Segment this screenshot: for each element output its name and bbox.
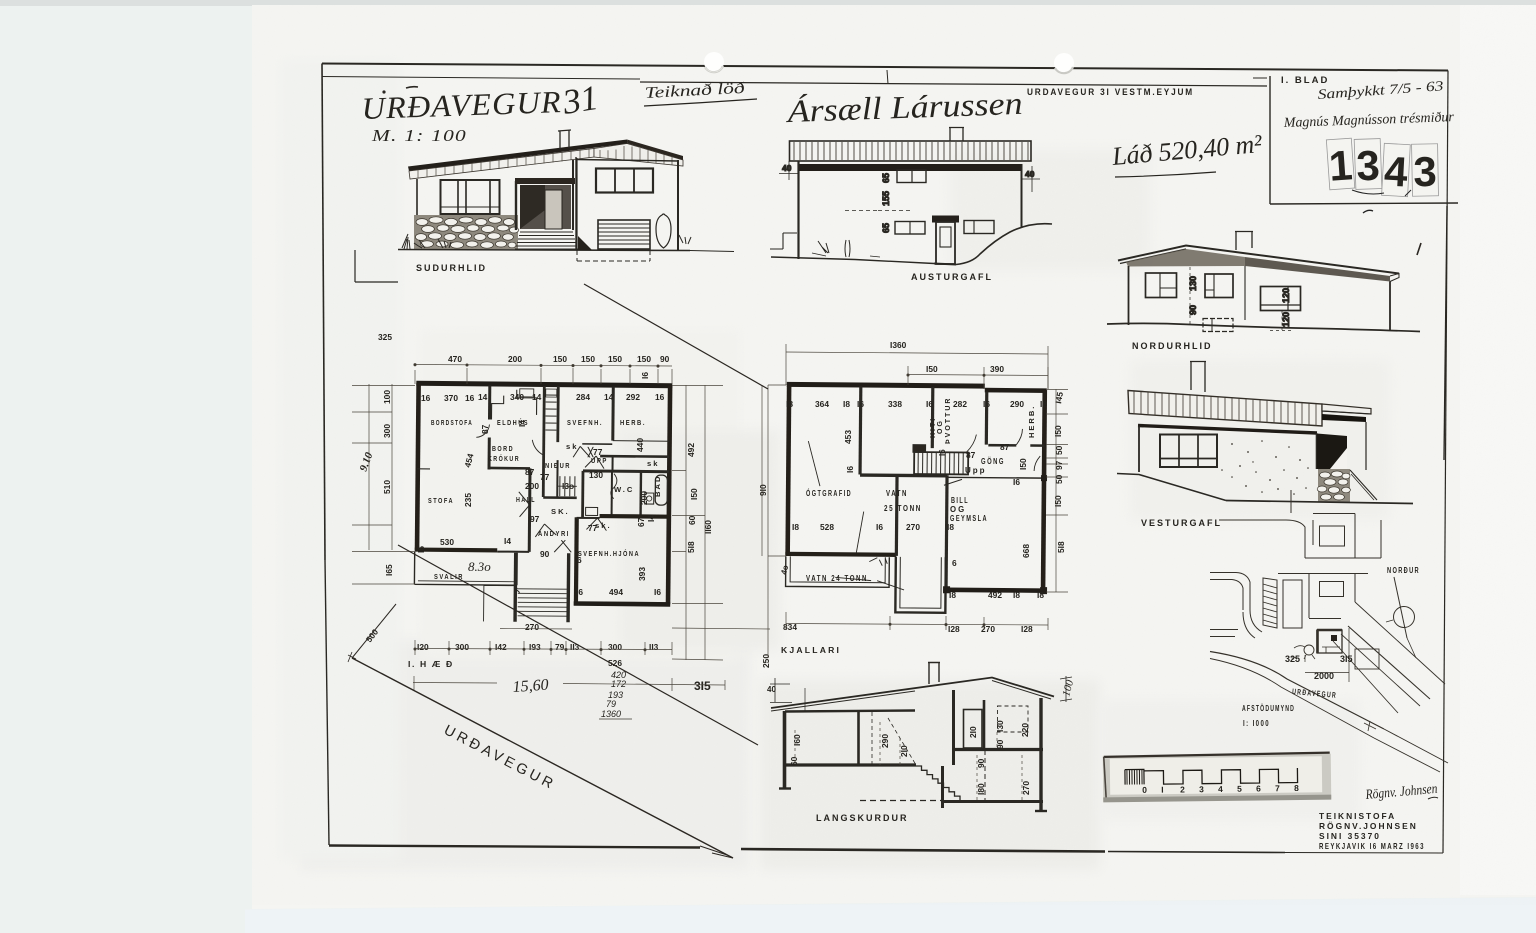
svg-text:I3o: I3o [562,481,574,491]
svg-text:60: 60 [687,515,697,525]
svg-text:AFSTÖDUMYND: AFSTÖDUMYND [1242,703,1295,713]
svg-text:M. 1: 100: M. 1: 100 [371,126,467,145]
svg-text:URÐAVEGUR: URÐAVEGUR [361,84,562,126]
svg-text:6: 6 [952,558,957,568]
svg-text:120: 120 [1281,288,1291,303]
svg-text:I50: I50 [689,488,699,500]
svg-text:I60: I60 [792,734,802,746]
svg-text:3I5: 3I5 [1340,654,1353,664]
svg-text:470: 470 [448,354,462,364]
svg-text:I6: I6 [938,449,947,456]
svg-text:1: 1 [1327,141,1354,190]
svg-text:2: 2 [1180,784,1185,794]
svg-text:I42: I42 [495,642,507,652]
svg-text:290: 290 [1010,399,1024,409]
svg-text:65: 65 [881,173,891,183]
svg-text:URDAVEGUR 3I VESTM.EYJUM: URDAVEGUR 3I VESTM.EYJUM [1027,87,1194,97]
svg-text:I6: I6 [926,399,933,409]
svg-text:3: 3 [1356,142,1381,190]
svg-text:I6: I6 [640,372,650,379]
svg-text:8.3o: 8.3o [468,559,491,574]
svg-text:60: 60 [789,756,799,766]
svg-text:I6: I6 [654,587,661,597]
svg-text:300: 300 [455,642,469,652]
svg-text:77: 77 [588,523,598,533]
svg-text:150: 150 [553,354,567,364]
svg-text:40: 40 [1025,169,1035,179]
svg-text:I8: I8 [792,522,799,532]
svg-text:I28: I28 [948,624,960,634]
svg-text:14: 14 [604,392,614,402]
svg-text:SVEFNH.: SVEFNH. [567,418,603,427]
svg-text:97: 97 [530,514,540,524]
svg-text:LANGSKURDUR: LANGSKURDUR [816,813,909,823]
svg-text:I. H Æ Ð: I. H Æ Ð [408,659,454,669]
svg-text:3: 3 [1413,148,1437,195]
svg-text:87: 87 [525,467,535,477]
svg-text:ANDYRI: ANDYRI [538,529,570,538]
svg-text:I6: I6 [1013,477,1020,487]
svg-text:I80: I80 [976,783,986,795]
svg-text:5I8: 5I8 [1056,541,1066,553]
svg-text:364: 364 [815,399,829,409]
svg-text:2I0: 2I0 [968,726,978,738]
svg-text:338: 338 [888,399,902,409]
svg-text:494: 494 [609,587,623,597]
svg-text:5: 5 [1237,784,1242,794]
svg-text:340: 340 [510,392,524,402]
svg-text:AUSTURGAFL: AUSTURGAFL [911,272,993,282]
svg-text:9I0: 9I0 [758,484,768,496]
svg-text:155: 155 [881,191,891,206]
svg-text:I93: I93 [529,642,541,652]
svg-text:77: 77 [540,472,550,482]
svg-text:I50: I50 [1018,458,1028,470]
svg-text:7: 7 [1275,783,1280,793]
svg-text:100: 100 [382,390,392,404]
svg-text:UPP: UPP [591,456,608,465]
svg-text:3: 3 [1199,784,1204,794]
svg-text:6: 6 [1256,783,1261,793]
svg-text:ÓGTGRAFID: ÓGTGRAFID [806,489,852,498]
svg-text:HITI: HITI [930,417,937,438]
svg-text:50: 50 [1054,445,1064,455]
svg-text:150: 150 [581,354,595,364]
svg-text:2000: 2000 [1314,671,1334,681]
svg-text:528: 528 [820,522,834,532]
svg-text:120: 120 [1281,312,1291,327]
svg-text:79: 79 [555,642,565,652]
svg-text:II3: II3 [649,642,659,652]
svg-text:sk: sk [566,442,578,451]
svg-text:200: 200 [508,354,522,364]
svg-text:2I0: 2I0 [899,745,909,757]
svg-text:65: 65 [881,223,891,233]
svg-text:130: 130 [1188,276,1198,291]
svg-text:3I5: 3I5 [694,679,711,693]
svg-text:90: 90 [540,549,550,559]
svg-text:390: 390 [990,364,1004,374]
svg-text:370: 370 [444,393,458,403]
svg-text:NORÐUR: NORÐUR [1387,565,1420,575]
svg-text:4: 4 [1383,147,1409,195]
svg-text:250: 250 [761,654,771,668]
svg-text:SVEFNH.HJÓNA: SVEFNH.HJÓNA [578,549,640,558]
svg-text:I6: I6 [845,466,855,473]
svg-text:sk: sk [647,459,659,468]
svg-text:97: 97 [1054,460,1064,470]
svg-text:I8: I8 [843,399,850,409]
svg-text:OG: OG [937,419,944,434]
svg-text:79: 79 [606,699,616,709]
svg-text:50: 50 [1054,474,1064,484]
svg-text:I45: I45 [1053,391,1065,405]
svg-text:220: 220 [1020,723,1030,737]
svg-text:270: 270 [525,622,539,632]
svg-text:6: 6 [577,555,582,565]
svg-text:I6: I6 [857,399,864,409]
svg-text:87: 87 [480,424,490,434]
svg-text:I: I [1161,785,1163,795]
svg-text:I8: I8 [949,590,956,600]
svg-text:sk.: sk. [595,521,612,530]
svg-text:40: 40 [767,685,776,694]
svg-text:Upp: Upp [965,466,987,475]
svg-text:90: 90 [660,354,670,364]
svg-text:4: 4 [1218,784,1223,794]
svg-text:I8: I8 [1037,590,1044,600]
svg-text:I50: I50 [1053,495,1063,507]
svg-text:14: 14 [532,392,542,402]
svg-text:282: 282 [953,399,967,409]
svg-text:╳77: ╳77 [587,447,603,458]
svg-text:0: 0 [1142,785,1147,795]
svg-text:8: 8 [1294,783,1299,793]
svg-text:40: 40 [782,163,792,173]
svg-text:I8: I8 [786,399,793,409]
svg-text:I6: I6 [576,587,583,597]
svg-text:492: 492 [988,590,1002,600]
svg-text:BAD: BAD [653,475,662,497]
svg-text:HALL: HALL [516,495,536,504]
svg-text:1360: 1360 [601,709,621,719]
svg-text:I6: I6 [983,399,990,409]
svg-text:HERB.: HERB. [1027,405,1036,438]
svg-text:292: 292 [626,392,640,402]
svg-text:530: 530 [440,537,454,547]
svg-text:235: 235 [463,493,473,507]
svg-text:TEIKNISTOFA: TEIKNISTOFA [1319,811,1396,821]
svg-text:150: 150 [608,354,622,364]
svg-text:I6: I6 [876,522,883,532]
svg-text:16: 16 [655,392,665,402]
svg-text:I: I000: I: I000 [1243,718,1270,728]
svg-text:16: 16 [465,393,475,403]
svg-text:I8: I8 [1040,399,1047,409]
svg-text:I4: I4 [517,420,527,427]
svg-text:453: 453 [843,430,853,444]
svg-text:REYKJAVIK I6 MARZ I963: REYKJAVIK I6 MARZ I963 [1319,841,1425,851]
svg-text:I6: I6 [416,546,426,553]
svg-text:BILL: BILL [951,496,969,505]
svg-text:284: 284 [576,392,590,402]
svg-text:KRÓKUR: KRÓKUR [488,454,520,463]
svg-text:VESTURGAFL: VESTURGAFL [1141,518,1222,528]
svg-text:BORDSTOFA: BORDSTOFA [431,418,473,427]
svg-text:200: 200 [639,491,649,505]
svg-text:14: 14 [478,392,488,402]
svg-text:OG: OG [950,505,966,514]
svg-text:II60: II60 [703,520,713,534]
svg-text:I30: I30 [995,720,1005,732]
svg-text:I4: I4 [504,536,511,546]
svg-text:I28: I28 [1021,624,1033,634]
svg-text:W.C: W.C [614,485,634,494]
svg-text:↗: ↗ [512,587,522,594]
svg-text:I4: I4 [646,515,656,522]
svg-text:I. BLAD: I. BLAD [1281,75,1329,86]
svg-text:300: 300 [382,424,392,438]
svg-text:ÞVOTTUR: ÞVOTTUR [945,397,952,444]
svg-text:RÖGNV.JOHNSEN: RÖGNV.JOHNSEN [1319,821,1418,831]
svg-text:KJALLARI: KJALLARI [781,645,841,655]
svg-text:HERB.: HERB. [620,418,646,427]
svg-text:STOFA: STOFA [428,496,454,505]
svg-text:GÖNG: GÖNG [981,457,1005,466]
svg-text:90: 90 [1188,305,1198,315]
svg-text:25 TONN: 25 TONN [884,504,922,513]
svg-text:31: 31 [559,78,601,122]
svg-text:290: 290 [880,734,890,748]
svg-text:393: 393 [637,567,647,581]
svg-text:5I8: 5I8 [686,541,696,553]
svg-text:90: 90 [995,739,1005,749]
svg-text:I360: I360 [890,340,907,350]
svg-text:GEYMSLA: GEYMSLA [950,514,988,523]
svg-text:SINI 35370: SINI 35370 [1319,831,1381,841]
svg-text:I50: I50 [1053,425,1063,437]
svg-text:I50: I50 [926,364,938,374]
svg-text:I20: I20 [417,642,429,652]
svg-text:I8: I8 [1013,590,1020,600]
svg-text:67: 67 [636,517,646,527]
svg-text:I8: I8 [947,522,954,532]
svg-text:270: 270 [1021,781,1031,795]
svg-text:130: 130 [589,470,603,480]
svg-text:NIÐUR: NIÐUR [545,461,571,470]
svg-text:87: 87 [1000,442,1010,452]
svg-text:15,60: 15,60 [512,677,549,696]
svg-text:150: 150 [637,354,651,364]
svg-text:440: 440 [635,438,645,452]
svg-text:270: 270 [906,522,920,532]
svg-text:200: 200 [525,481,539,491]
svg-text:SUDURHLID: SUDURHLID [416,263,487,273]
svg-text:NORDURHLID: NORDURHLID [1132,341,1213,351]
svg-text:16: 16 [421,393,431,403]
svg-text:300: 300 [608,642,622,652]
svg-text:87: 87 [966,450,976,460]
svg-text:BORD: BORD [492,444,514,453]
svg-text:VATN 24 TONN: VATN 24 TONN [806,574,868,583]
svg-text:I65: I65 [384,564,394,576]
svg-text:VATN: VATN [886,489,908,498]
svg-text:90: 90 [976,758,986,768]
svg-text:325: 325 [378,332,392,342]
svg-text:510: 510 [382,480,392,494]
svg-text:SK.: SK. [551,507,570,516]
svg-text:492: 492 [686,443,696,457]
svg-text:668: 668 [1021,544,1031,558]
